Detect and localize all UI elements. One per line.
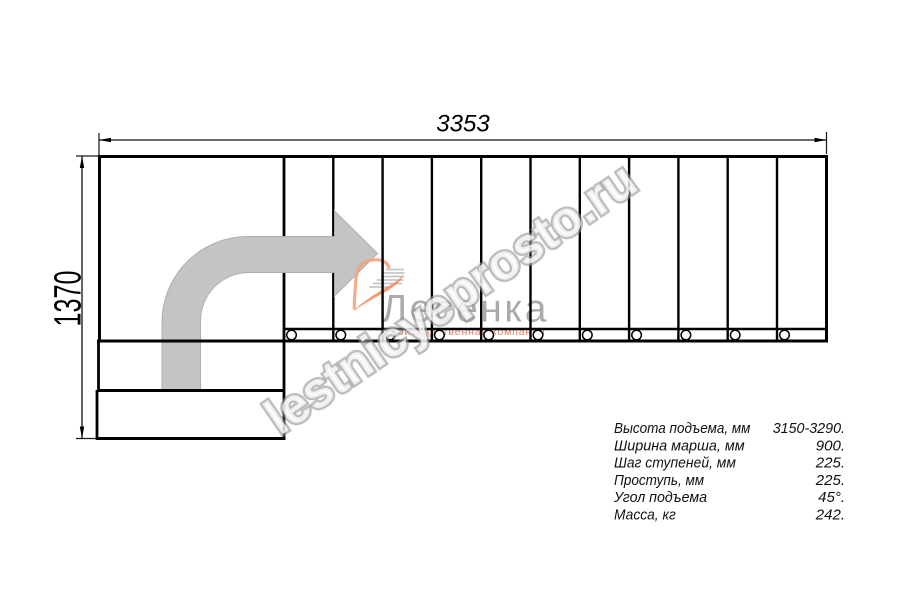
svg-text:1370: 1370 <box>48 271 90 327</box>
svg-text:900.: 900. <box>816 437 845 454</box>
svg-text:Масса, кг: Масса, кг <box>614 507 676 524</box>
svg-text:225.: 225. <box>815 455 845 472</box>
svg-text:Шаг ступеней, мм: Шаг ступеней, мм <box>614 455 736 472</box>
svg-text:Проступь, мм: Проступь, мм <box>614 472 704 489</box>
svg-text:45°.: 45°. <box>818 489 845 506</box>
svg-text:225.: 225. <box>815 472 845 489</box>
svg-text:Ширина марша, мм: Ширина марша, мм <box>614 437 745 454</box>
svg-text:Высота подъема, мм: Высота подъема, мм <box>614 420 750 437</box>
svg-text:242.: 242. <box>815 507 845 524</box>
svg-text:3150-3290.: 3150-3290. <box>773 420 845 437</box>
svg-text:3353: 3353 <box>436 111 490 138</box>
svg-text:Угол подъема: Угол подъема <box>613 489 707 506</box>
